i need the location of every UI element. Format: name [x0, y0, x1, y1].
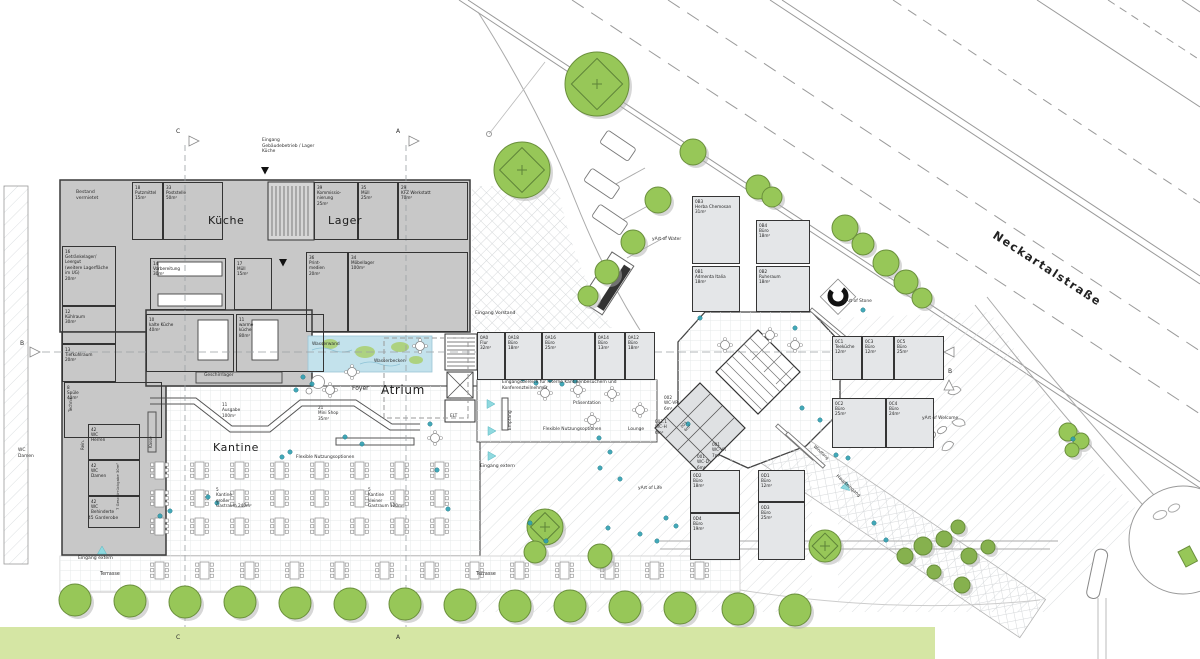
person-dot — [664, 516, 668, 520]
person-dot — [793, 326, 797, 330]
tree — [645, 187, 674, 216]
person-dot — [618, 477, 622, 481]
person-dot — [158, 514, 162, 518]
person-dot — [1071, 437, 1075, 441]
person-dot — [884, 538, 888, 542]
tree — [852, 233, 877, 258]
dining-table — [351, 490, 369, 507]
green-band — [0, 627, 935, 659]
dining-table — [691, 562, 709, 579]
person-dot — [698, 316, 702, 320]
person-dot — [288, 450, 292, 454]
person-dot — [686, 422, 690, 426]
dining-table — [191, 462, 209, 479]
dining-table — [271, 518, 289, 535]
side-ramp — [4, 186, 28, 564]
person-dot — [435, 468, 439, 472]
dining-table — [271, 490, 289, 507]
dining-table — [351, 462, 369, 479]
dining-table — [151, 490, 169, 507]
dining-table — [351, 518, 369, 535]
dining-table — [231, 462, 249, 479]
person-dot — [597, 436, 601, 440]
person-dot — [846, 456, 850, 460]
person-dot — [800, 406, 804, 410]
person-dot — [872, 521, 876, 525]
tree — [762, 187, 785, 210]
dining-table — [391, 490, 409, 507]
tree — [680, 139, 709, 168]
dining-table — [151, 462, 169, 479]
person-dot — [674, 524, 678, 528]
person-dot — [521, 377, 525, 381]
entrance-arrow — [487, 343, 495, 352]
dining-table — [511, 562, 529, 579]
dining-table — [311, 490, 329, 507]
person-dot — [534, 381, 538, 385]
person-dot — [548, 378, 552, 382]
dining-table — [391, 462, 409, 479]
person-dot — [598, 466, 602, 470]
dining-table — [376, 562, 394, 579]
tree — [621, 230, 648, 257]
person-dot — [301, 375, 305, 379]
person-dot — [280, 455, 284, 459]
tree — [334, 588, 369, 623]
person-dot — [818, 418, 822, 422]
dining-table — [191, 518, 209, 535]
person-dot — [343, 435, 347, 439]
dining-table — [421, 562, 439, 579]
dining-table — [311, 518, 329, 535]
dining-table — [431, 518, 449, 535]
dining-table — [466, 562, 484, 579]
dining-table — [391, 518, 409, 535]
person-dot — [834, 453, 838, 457]
dining-table — [191, 490, 209, 507]
dining-table — [241, 562, 259, 579]
dining-table — [431, 490, 449, 507]
dining-table — [331, 562, 349, 579]
dining-table — [151, 518, 169, 535]
person-dot — [608, 450, 612, 454]
dining-table — [431, 462, 449, 479]
tree — [912, 288, 935, 311]
dining-table — [231, 518, 249, 535]
elt-room — [445, 400, 475, 422]
person-dot — [638, 532, 642, 536]
roundabout — [1129, 486, 1200, 594]
dining-table — [556, 562, 574, 579]
dining-table — [311, 462, 329, 479]
dining-table — [151, 562, 169, 579]
person-dot — [215, 501, 219, 505]
person-dot — [861, 308, 865, 312]
plaza-northeast — [472, 186, 612, 332]
art-of-stone — [820, 279, 855, 314]
person-dot — [560, 382, 564, 386]
person-dot — [360, 442, 364, 446]
tree-existing — [565, 52, 632, 119]
person-dot — [294, 388, 298, 392]
dining-table — [646, 562, 664, 579]
person-dot — [168, 509, 172, 513]
person-dot — [528, 521, 532, 525]
person-dot — [446, 507, 450, 511]
person-dot — [206, 495, 210, 499]
person-dot — [544, 539, 548, 543]
person-dot — [606, 526, 610, 530]
person-dot — [655, 539, 659, 543]
site-plan: 18 Putzmittel 15m²33 Poststelle 50m²39 K… — [0, 0, 1200, 659]
person-dot — [428, 422, 432, 426]
core-west — [445, 334, 477, 422]
dining-table — [231, 490, 249, 507]
dining-table — [286, 562, 304, 579]
dining-table — [271, 462, 289, 479]
dining-table — [196, 562, 214, 579]
tree — [389, 588, 424, 623]
plan-linework — [0, 0, 1200, 659]
person-dot — [573, 379, 577, 383]
tree — [444, 589, 479, 624]
person-dot — [310, 382, 314, 386]
stairwell-north — [268, 182, 314, 240]
door-marker — [261, 167, 269, 175]
